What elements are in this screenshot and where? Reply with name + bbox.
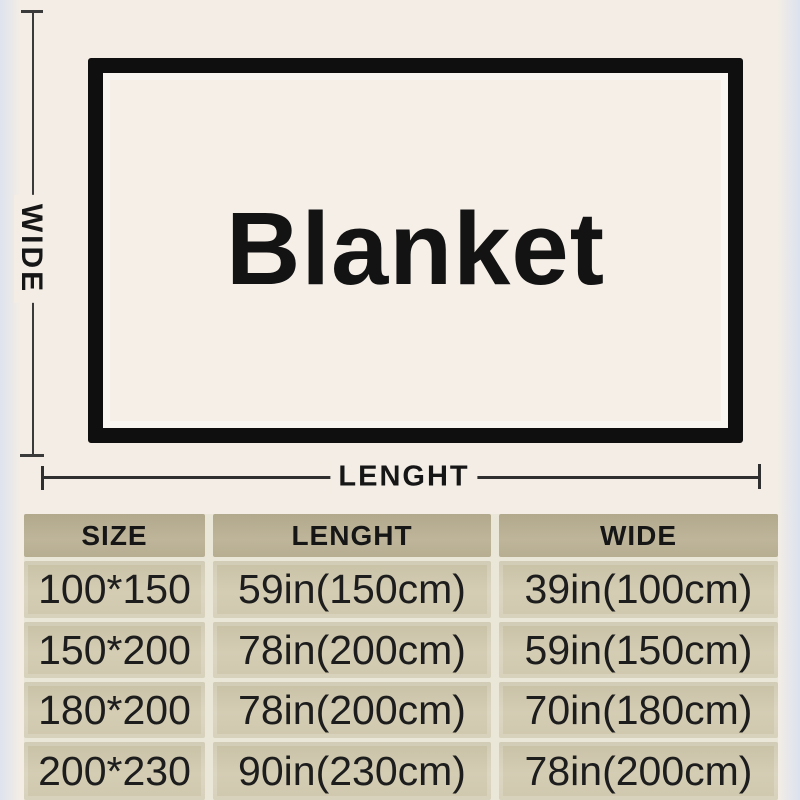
row3-wide-value: 70in(180cm)	[499, 682, 778, 738]
row1-size-value: 100*150	[24, 561, 205, 618]
wide-column-header: WIDE	[499, 514, 778, 557]
wide-axis-label: WIDE	[14, 195, 48, 303]
row3-size-value: 180*200	[24, 682, 205, 738]
length-column-header: LENGHT	[213, 514, 491, 557]
length-axis-label: LENGHT	[330, 460, 477, 495]
row4-size-value: 200*230	[24, 742, 205, 800]
row4-wide-value: 78in(200cm)	[499, 742, 778, 800]
size-column-header: SIZE	[24, 514, 205, 557]
row2-length-value: 78in(200cm)	[213, 622, 491, 678]
length-dimension-tick-right	[758, 464, 761, 489]
row4-length-value: 90in(230cm)	[213, 742, 491, 800]
row2-wide-value: 59in(150cm)	[499, 622, 778, 678]
size-table: SIZE LENGHT WIDE 100*150 59in(150cm) 39i…	[24, 514, 778, 800]
row3-length-value: 78in(200cm)	[213, 682, 491, 738]
blanket-title: Blanket	[226, 197, 605, 300]
wide-dimension-tick-bottom	[20, 454, 44, 457]
wide-dimension-tick-top	[21, 10, 43, 13]
row1-length-value: 59in(150cm)	[213, 561, 491, 618]
row2-size-value: 150*200	[24, 622, 205, 678]
blanket-rectangle: Blanket	[88, 58, 743, 443]
product-size-chart: WIDE Blanket LENGHT SIZE LENGHT WIDE 100…	[0, 0, 800, 800]
row1-wide-value: 39in(100cm)	[499, 561, 778, 618]
length-dimension-tick-left	[41, 466, 44, 490]
